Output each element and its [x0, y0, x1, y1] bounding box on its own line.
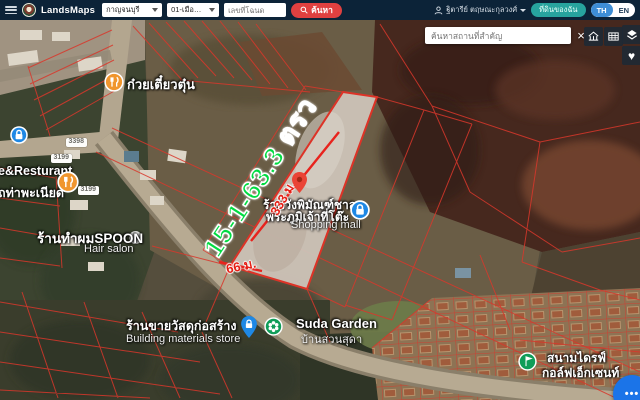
app-logo: [22, 3, 36, 17]
layers-icon: [625, 28, 639, 42]
blue-pin-lock-icon: [241, 316, 257, 338]
layers-button[interactable]: [622, 25, 640, 44]
deed-number-input[interactable]: [224, 3, 286, 17]
poi-label-suda-garden: Suda Garden: [296, 316, 377, 331]
home-button[interactable]: [584, 27, 603, 46]
user-name: ฐิตารีย์ ตฤษณะกุลวงศ์: [446, 4, 517, 16]
district-value: 01-เมืองกาญจนบุรี: [171, 4, 205, 16]
lock-icon: [10, 126, 28, 144]
restaurant-marker[interactable]: [57, 171, 79, 198]
grid-icon: [607, 30, 620, 43]
locked-poi-pin[interactable]: [241, 316, 257, 343]
flower-icon: [264, 317, 283, 336]
province-select[interactable]: กาญจนบุรี: [102, 3, 162, 17]
garden-marker[interactable]: [264, 317, 283, 341]
grid-button[interactable]: [604, 27, 623, 46]
map-canvas[interactable]: ก๋วยเตี๋ยวตุ๋น e&Resturant ถท่าพะเนียด ร…: [0, 0, 640, 400]
lock-marker[interactable]: [10, 126, 28, 149]
place-search-input[interactable]: [425, 27, 571, 44]
heart-icon: ♥: [628, 50, 635, 62]
lang-th-button[interactable]: TH: [591, 3, 613, 17]
lang-en-button[interactable]: EN: [613, 6, 635, 15]
lock-icon: [350, 200, 370, 220]
brand-title: LandsMaps: [41, 5, 95, 16]
restaurant-marker[interactable]: [104, 72, 124, 97]
lock-marker[interactable]: [350, 200, 370, 225]
province-value: กาญจนบุรี: [106, 4, 148, 16]
golf-flag-icon: [518, 352, 537, 371]
golf-marker[interactable]: [518, 352, 537, 376]
favorites-button[interactable]: ♥: [622, 46, 640, 65]
poi-label-hair-salon-en: Hair salon: [84, 243, 134, 255]
search-icon: [300, 6, 308, 14]
poi-label-golf-2: กอล์ฟเอ็กเซนท์: [542, 364, 619, 383]
menu-icon[interactable]: [5, 6, 17, 14]
chevron-down-icon: [152, 8, 158, 12]
search-result-pin[interactable]: [292, 172, 307, 198]
poi-label-suda-garden-th: บ้านสวนสุดา: [301, 330, 362, 348]
ellipsis-icon: •••: [625, 388, 640, 400]
home-icon: [587, 30, 600, 43]
poi-label-noodle-shop: ก๋วยเตี๋ยวตุ๋น: [127, 74, 195, 95]
person-icon: [434, 6, 443, 15]
food-icon: [104, 72, 124, 92]
top-bar: LandsMaps กาญจนบุรี 01-เมืองกาญจนบุรี ค้…: [0, 0, 640, 20]
poi-label-building-store-en: Building materials store: [126, 333, 240, 345]
food-icon: [57, 171, 79, 193]
language-toggle: TH EN: [591, 3, 635, 17]
user-menu[interactable]: ฐิตารีย์ ตฤษณะกุลวงศ์: [434, 4, 526, 16]
chevron-down-icon: [520, 9, 526, 12]
red-pin-icon: [292, 172, 307, 193]
poi-label-restaurant-th: ถท่าพะเนียด: [0, 183, 64, 203]
district-select[interactable]: 01-เมืองกาญจนบุรี: [167, 3, 219, 17]
road-badge: 3199: [78, 186, 99, 195]
search-button-label: ค้นหา: [311, 3, 333, 17]
my-land-button[interactable]: ที่ดินของฉัน: [531, 3, 585, 17]
road-badge: 3199: [51, 154, 72, 163]
chevron-down-icon: [209, 8, 215, 12]
road-badge: 3398: [66, 138, 87, 147]
search-button[interactable]: ค้นหา: [291, 3, 342, 18]
